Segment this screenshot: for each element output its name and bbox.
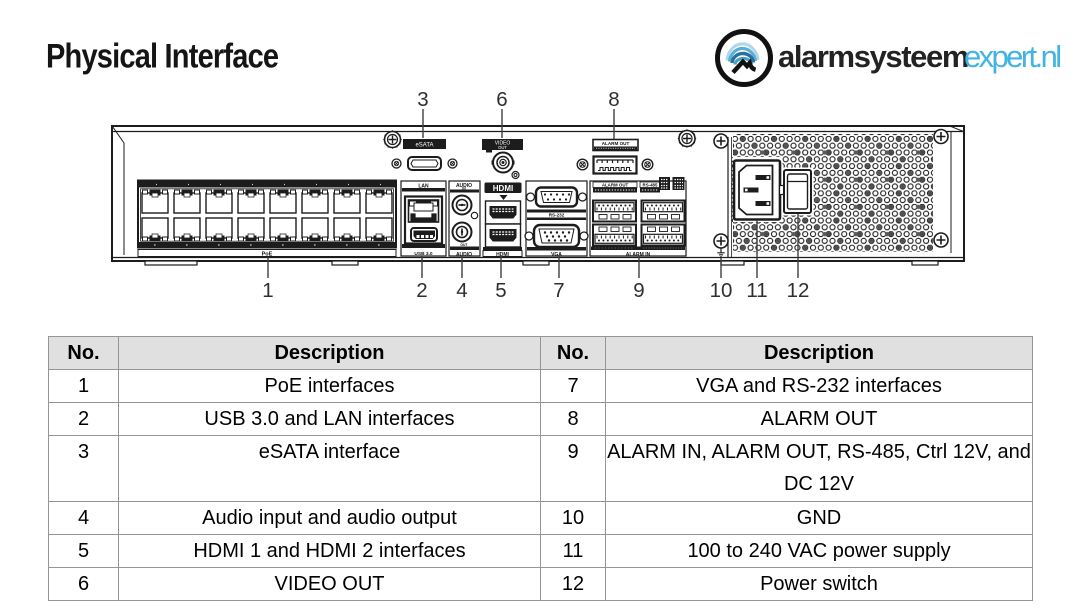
- svg-text:RS-485: RS-485: [643, 182, 658, 187]
- svg-text:10: 10: [710, 279, 733, 302]
- svg-text:HDMI: HDMI: [496, 252, 509, 258]
- svg-text:9: 9: [633, 279, 644, 302]
- svg-text:expert.nl: expert.nl: [964, 39, 1060, 74]
- svg-text:HDMI: HDMI: [493, 184, 513, 193]
- svg-text:IN: IN: [462, 187, 466, 191]
- svg-text:1: 1: [262, 279, 273, 302]
- svg-text:8: 8: [608, 88, 619, 111]
- svg-text:USB 3.0: USB 3.0: [414, 251, 432, 257]
- svg-text:ALARM OUT: ALARM OUT: [602, 182, 629, 187]
- svg-text:PoE: PoE: [262, 252, 273, 258]
- svg-text:AUDIO: AUDIO: [456, 252, 472, 258]
- svg-text:OUT: OUT: [460, 243, 468, 247]
- svg-text:VGA: VGA: [551, 252, 562, 258]
- svg-text:ALARM IN: ALARM IN: [626, 252, 651, 258]
- svg-text:LAN: LAN: [418, 184, 429, 190]
- svg-text:7: 7: [553, 279, 564, 302]
- svg-text:11: 11: [746, 279, 767, 302]
- svg-text:5: 5: [495, 279, 506, 302]
- svg-text:12: 12: [787, 279, 810, 302]
- svg-text:alarmsysteem: alarmsysteem: [778, 39, 968, 74]
- svg-text:RS-232: RS-232: [549, 212, 565, 217]
- svg-text:4: 4: [456, 279, 467, 302]
- svg-text:ALARM OUT: ALARM OUT: [602, 141, 630, 146]
- svg-text:eSATA: eSATA: [415, 143, 433, 149]
- svg-text:OUT: OUT: [498, 145, 507, 150]
- svg-text:2: 2: [416, 279, 427, 302]
- svg-text:6: 6: [496, 88, 507, 111]
- svg-text:3: 3: [417, 88, 428, 111]
